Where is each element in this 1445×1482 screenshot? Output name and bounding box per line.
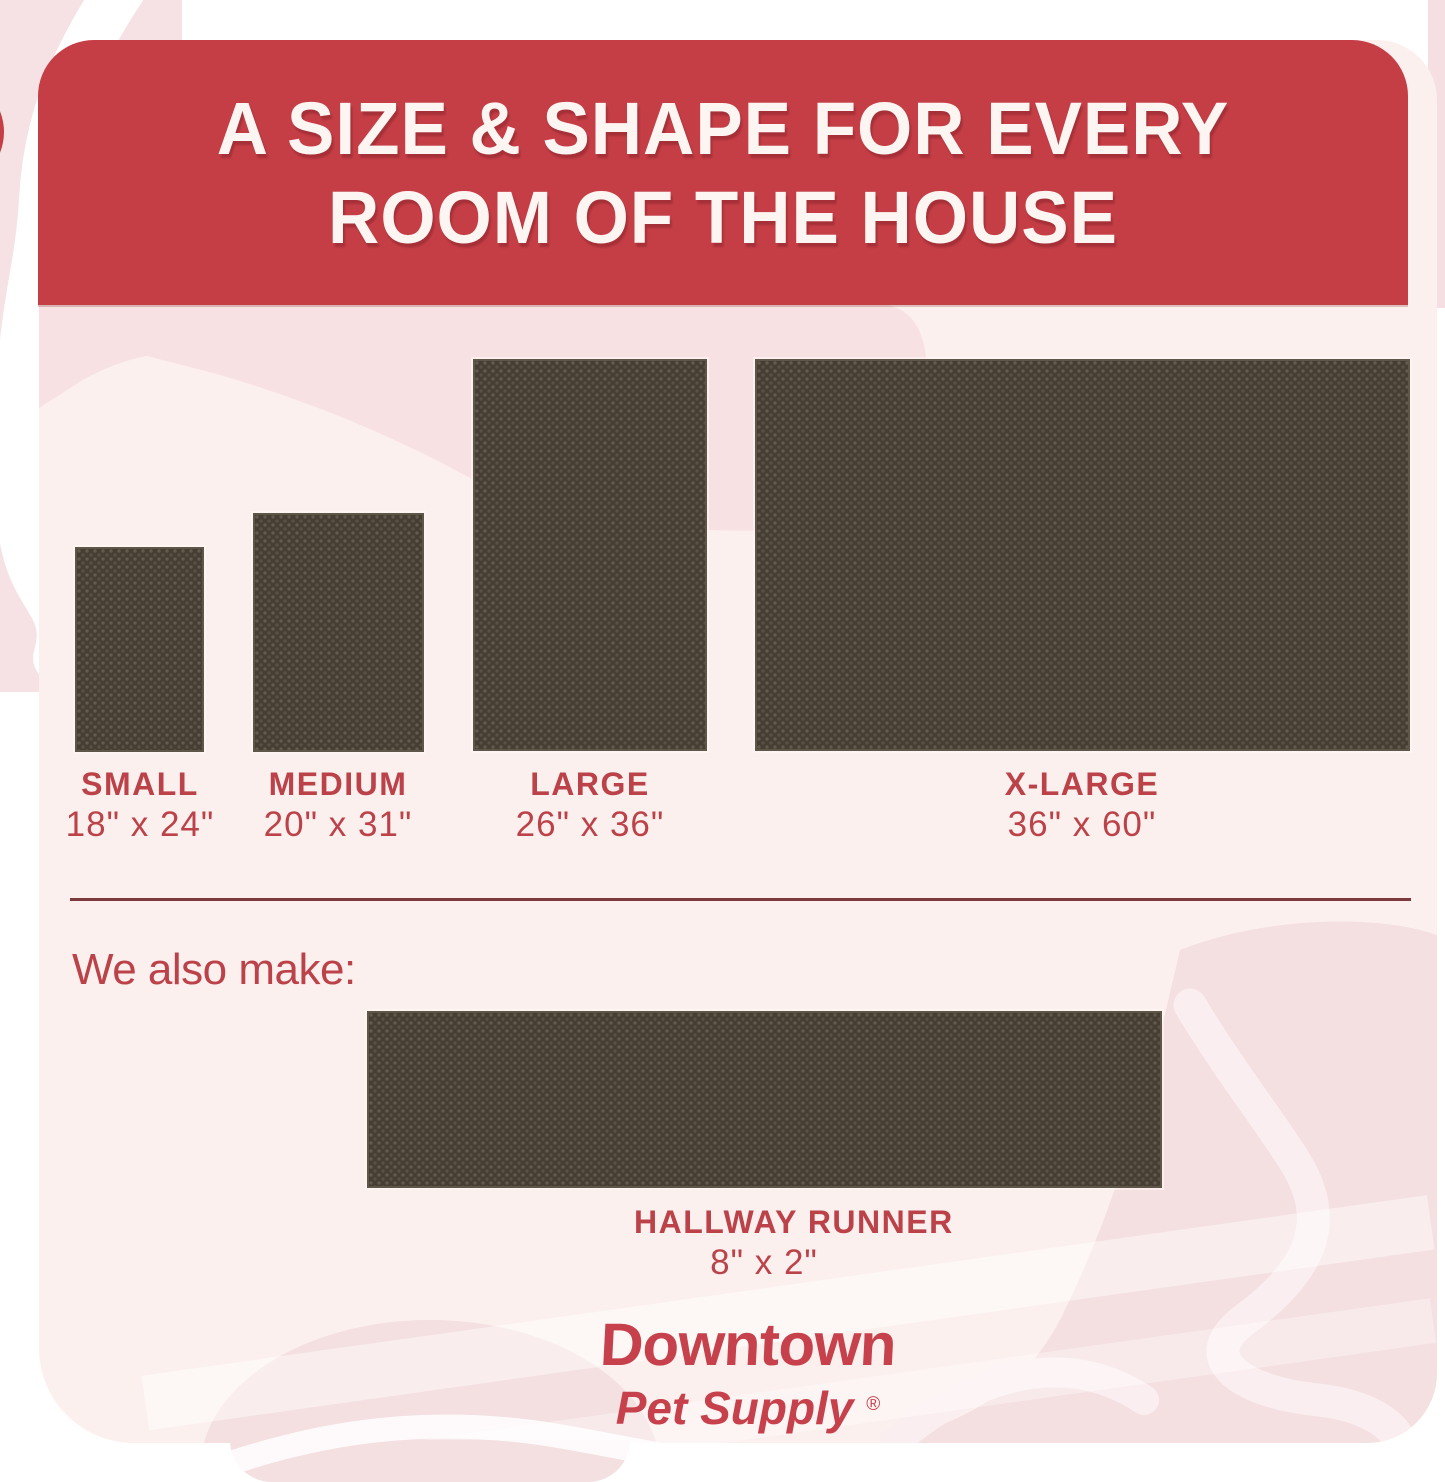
- rug-swatch-xlarge: [755, 359, 1410, 751]
- page-title-line-1: A SIZE & SHAPE FOR EVERY: [217, 87, 1230, 170]
- size-dimensions-large: 26" x 36": [460, 805, 720, 845]
- page-title-line-2: ROOM OF THE HOUSE: [328, 176, 1118, 259]
- rug-swatch-small: [75, 547, 204, 752]
- bottom-white-wave: [0, 1380, 1445, 1482]
- size-dimensions-xlarge: 36" x 60": [952, 805, 1212, 845]
- runner-name: HALLWAY RUNNER: [634, 1204, 894, 1241]
- page-title: A SIZE & SHAPE FOR EVERY ROOM OF THE HOU…: [65, 40, 1380, 262]
- infographic-page: SMALL 18" x 24" MEDIUM 20" x 31" LARGE 2…: [0, 0, 1445, 1482]
- size-dimensions-medium: 20" x 31": [208, 805, 468, 845]
- bottom-white-wave-stroke: [160, 1426, 830, 1482]
- size-name-large: LARGE: [460, 766, 720, 803]
- divider-line: [70, 898, 1411, 901]
- rug-swatch-large: [473, 359, 707, 751]
- rug-swatch-hallway-runner: [367, 1011, 1162, 1188]
- size-name-xlarge: X-LARGE: [952, 766, 1212, 803]
- red-dot-sliver: [0, 76, 4, 188]
- rug-swatch-medium: [253, 513, 424, 752]
- runner-dimensions: 8" x 2": [634, 1243, 894, 1283]
- also-make-label: We also make:: [72, 945, 356, 995]
- size-name-medium: MEDIUM: [208, 766, 468, 803]
- brand-name: Downtown: [446, 1310, 1050, 1379]
- header-banner: A SIZE & SHAPE FOR EVERY ROOM OF THE HOU…: [38, 40, 1408, 305]
